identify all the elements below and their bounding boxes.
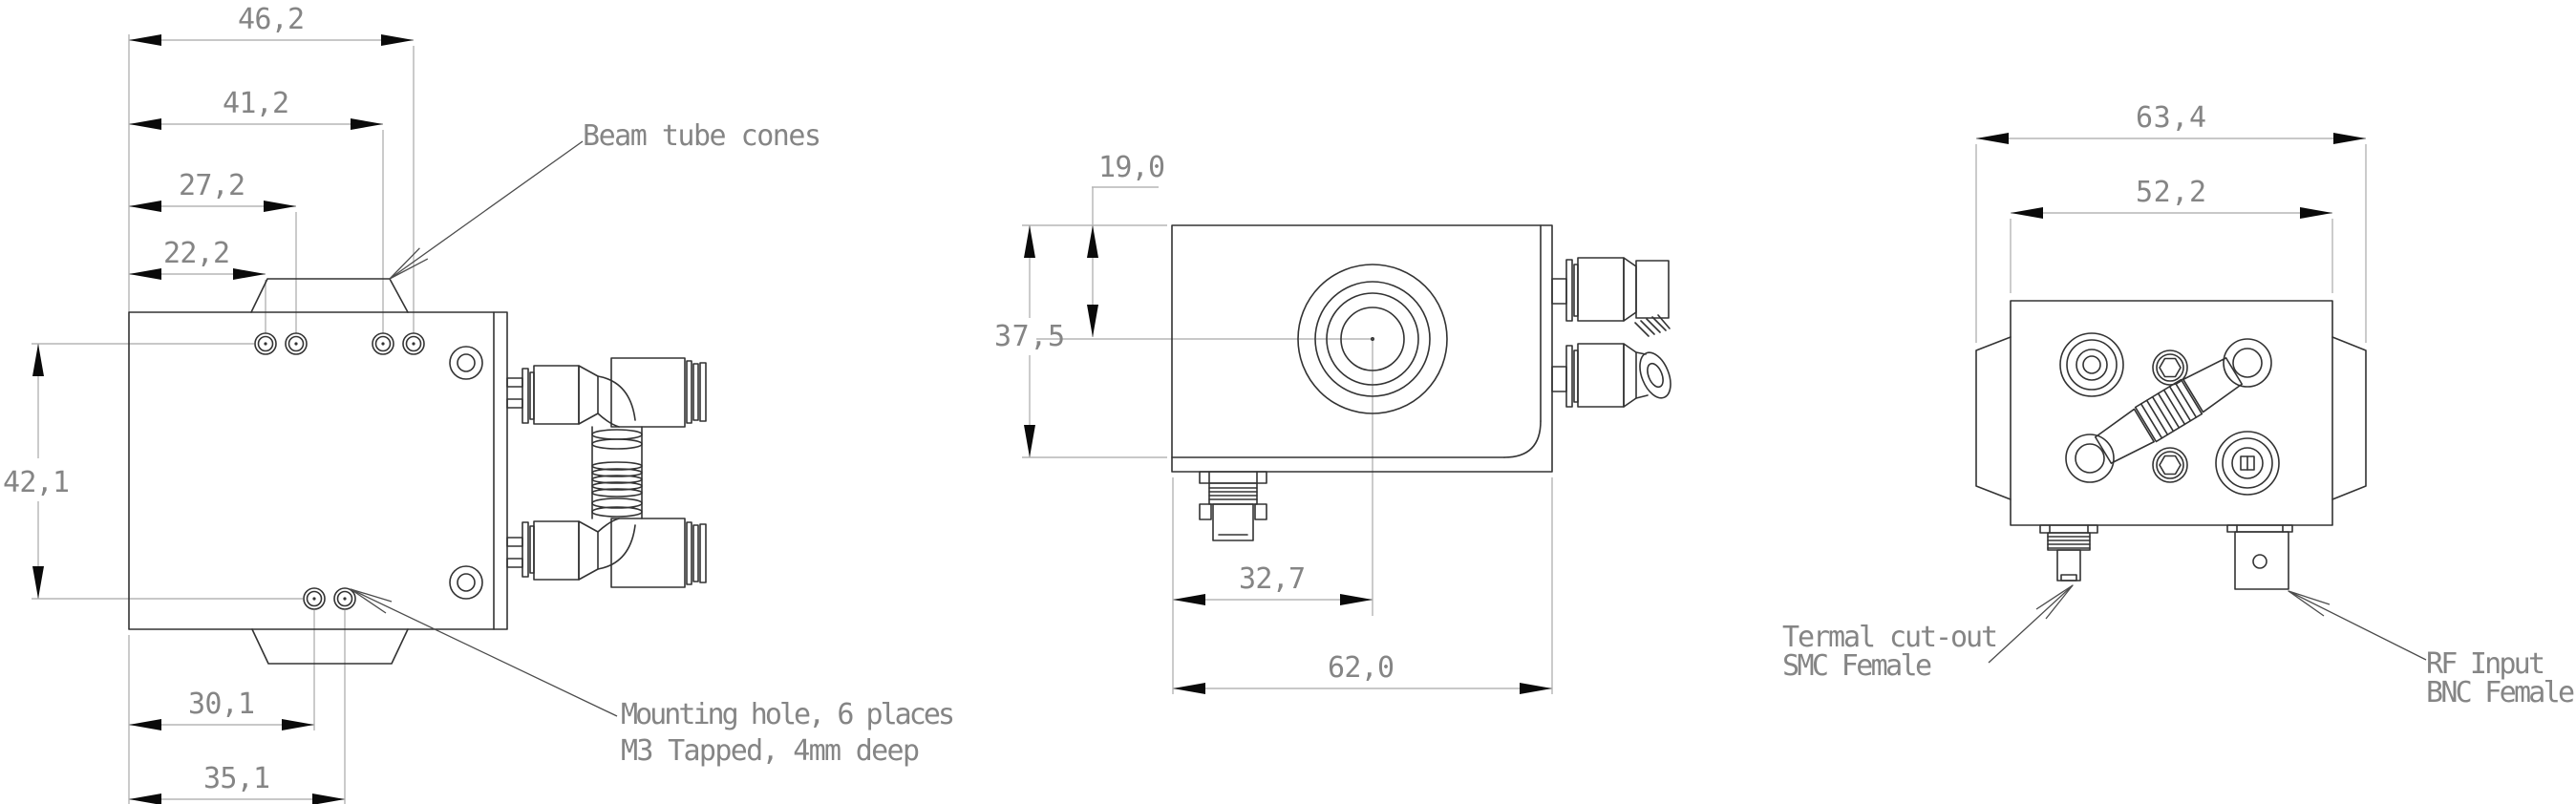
dim-30-1: 30,1 <box>188 688 255 721</box>
beam-cone-top <box>251 279 408 312</box>
dim-41-2: 41,2 <box>223 87 289 120</box>
dim-63-4: 63,4 <box>2136 101 2206 135</box>
beam-cones-leader <box>390 141 583 279</box>
dim-52-2: 52,2 <box>2136 176 2206 209</box>
counterbore-hole <box>450 566 482 599</box>
end-socket-screws <box>2153 350 2187 482</box>
front-smc-connector <box>1200 472 1267 540</box>
beam-cone-bottom <box>252 629 408 664</box>
thermal-label-line2: SMC Female <box>1782 649 1932 683</box>
side-mounting-holes <box>255 333 482 609</box>
dim-42-1: 42,1 <box>3 466 70 499</box>
front-dim-arrows <box>1024 225 1552 694</box>
rf-input-leader-arrow-icon <box>2289 591 2330 616</box>
mounting-hole-leader-arrow-icon <box>351 589 392 613</box>
end-cone-right <box>2332 337 2366 499</box>
end-bnc-connector <box>2227 525 2292 589</box>
counterbore-hole <box>450 347 482 379</box>
end-body <box>1976 301 2366 525</box>
dim-27-2: 27,2 <box>179 169 245 202</box>
dim-19-0: 19,0 <box>1098 151 1165 184</box>
dim-35-1: 35,1 <box>203 762 270 795</box>
side-view: 46,2 41,2 27,2 22,2 42,1 30,1 35,1 <box>3 3 955 804</box>
mounting-hole-label-line1: Mounting hole, 6 places <box>621 698 955 731</box>
mounting-hole-leader <box>351 589 617 716</box>
rf-input-leader <box>2289 591 2426 660</box>
dim-32-7: 32,7 <box>1239 562 1306 596</box>
mounting-hole-label-line2: M3 Tapped, 4mm deep <box>621 734 920 768</box>
beam-cones-label: Beam tube cones <box>583 119 821 153</box>
side-body <box>129 279 507 664</box>
front-fittings <box>1552 258 1676 407</box>
side-fittings <box>507 358 706 587</box>
end-view: 63,4 52,2 <box>1782 101 2575 709</box>
front-extension-lines <box>1022 187 1552 694</box>
end-smc-connector <box>2040 525 2097 581</box>
end-apertures <box>2060 333 2279 495</box>
thermal-leader <box>1989 585 2073 663</box>
dim-22-2: 22,2 <box>163 237 230 270</box>
dim-46-2: 46,2 <box>238 3 305 36</box>
front-body <box>1172 225 1552 472</box>
front-view: 19,0 37,5 32,7 62,0 <box>994 151 1676 694</box>
drawing-canvas: 46,2 41,2 27,2 22,2 42,1 30,1 35,1 <box>0 0 2576 804</box>
end-cone-left <box>1976 337 2011 499</box>
drawing-page: 46,2 41,2 27,2 22,2 42,1 30,1 35,1 <box>0 0 2576 804</box>
end-extension-lines <box>1976 138 2366 343</box>
dim-62-0: 62,0 <box>1328 651 1394 685</box>
dim-37-5: 37,5 <box>994 320 1065 353</box>
rf-input-label-line2: BNC Female <box>2426 676 2575 709</box>
